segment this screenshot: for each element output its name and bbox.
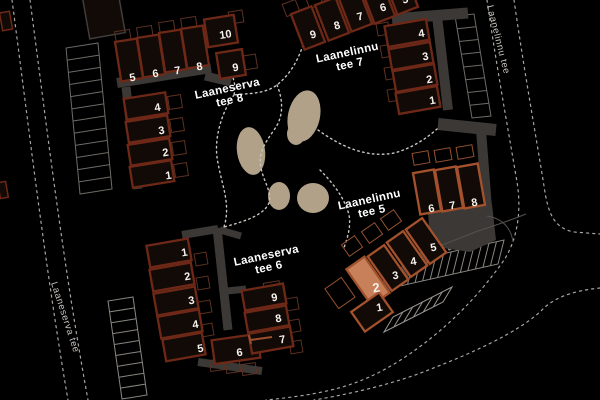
landscape-blob <box>297 183 329 213</box>
landscape-blob <box>268 182 290 210</box>
unit-number-laaneserva-tee-8-10: 10 <box>219 28 233 42</box>
building-fragment <box>83 0 125 39</box>
site-plan-map: 5678109432198765432112345698767854321Laa… <box>0 0 600 400</box>
site-plan-svg: 5678109432198765432112345698767854321Laa… <box>0 0 600 400</box>
building-fragment <box>0 11 12 30</box>
walkway-strip <box>392 13 468 19</box>
walkway-strip <box>438 124 496 130</box>
landscape-blob <box>287 123 305 145</box>
